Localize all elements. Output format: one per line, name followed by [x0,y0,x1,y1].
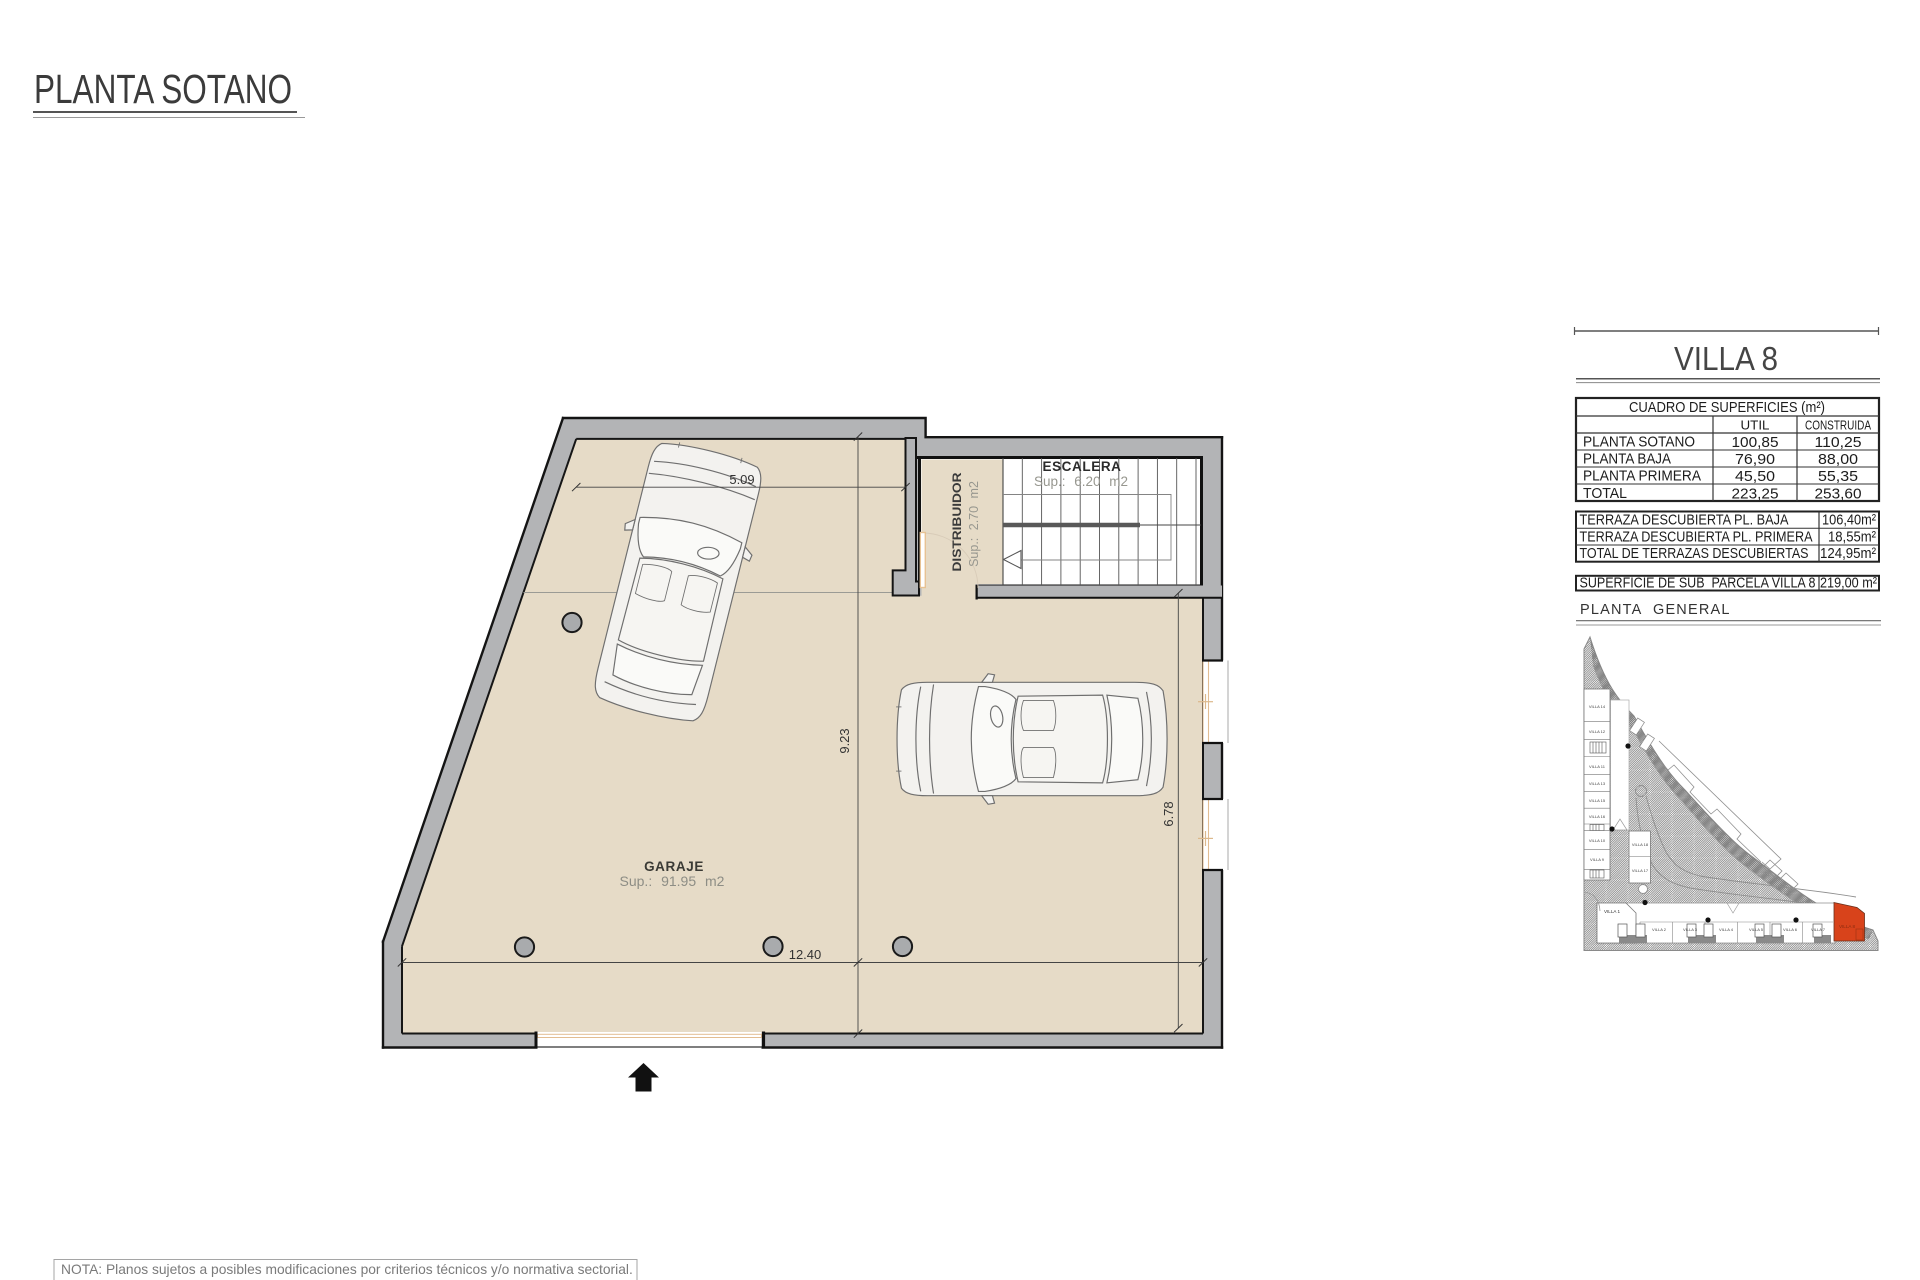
svg-text:VILLA 8: VILLA 8 [1674,340,1778,377]
svg-text:VILLA 3: VILLA 3 [1683,927,1698,932]
svg-text:VILLA 8: VILLA 8 [1839,924,1856,929]
svg-text:76,90: 76,90 [1735,451,1775,468]
svg-text:223,25: 223,25 [1732,486,1779,503]
svg-text:VILLA 1: VILLA 1 [1604,909,1621,914]
svg-text:GARAJE: GARAJE [644,859,704,874]
svg-text:VILLA 9: VILLA 9 [1590,857,1605,862]
svg-text:TERRAZA DESCUBIERTA PL. PRIMER: TERRAZA DESCUBIERTA PL. PRIMERA [1580,528,1813,545]
svg-text:VILLA 16: VILLA 16 [1589,814,1606,819]
svg-text:PLANTA SOTANO: PLANTA SOTANO [1583,434,1695,451]
svg-text:VILLA 12: VILLA 12 [1589,729,1606,734]
svg-text:124,95m²: 124,95m² [1820,545,1876,562]
svg-text:VILLA 13: VILLA 13 [1589,781,1606,786]
svg-text:Sup.: 91.95 m2: Sup.: 91.95 m2 [620,873,725,889]
svg-text:6.78: 6.78 [1161,801,1176,826]
svg-text:88,00: 88,00 [1818,451,1858,468]
svg-text:5.09: 5.09 [729,472,754,487]
svg-text:VILLA 17: VILLA 17 [1632,868,1649,873]
svg-text:VILLA 11: VILLA 11 [1589,764,1606,769]
svg-text:VILLA 4: VILLA 4 [1719,927,1734,932]
svg-text:PLANTA PRIMERA: PLANTA PRIMERA [1583,468,1701,485]
svg-text:TOTAL: TOTAL [1583,485,1627,502]
svg-text:Sup.: 6.20 m2: Sup.: 6.20 m2 [1034,474,1128,489]
svg-text:18,55m²: 18,55m² [1828,528,1876,545]
svg-text:45,50: 45,50 [1735,468,1775,485]
svg-text:CUADRO DE SUPERFICIES (m²): CUADRO DE SUPERFICIES (m²) [1629,399,1825,416]
svg-text:253,60: 253,60 [1815,486,1862,503]
svg-text:VILLA 5: VILLA 5 [1749,927,1764,932]
svg-text:NOTA: Planos sujetos a posible: NOTA: Planos sujetos a posibles modifica… [61,1262,633,1277]
svg-text:CONSTRUIDA: CONSTRUIDA [1805,419,1872,433]
svg-text:106,40m²: 106,40m² [1822,512,1876,529]
svg-text:110,25: 110,25 [1815,434,1862,451]
svg-text:55,35: 55,35 [1818,468,1858,485]
svg-text:VILLA 7: VILLA 7 [1811,927,1826,932]
svg-text:TERRAZA DESCUBIERTA PL. BAJA: TERRAZA DESCUBIERTA PL. BAJA [1580,512,1789,529]
svg-text:VILLA 6: VILLA 6 [1783,927,1798,932]
svg-text:UTIL: UTIL [1741,419,1770,433]
svg-text:PLANTA SOTANO: PLANTA SOTANO [34,66,292,112]
svg-text:SUPERFICIE DE SUB_PARCELA VILL: SUPERFICIE DE SUB_PARCELA VILLA 8 [1580,574,1816,591]
svg-text:VILLA 2: VILLA 2 [1652,927,1667,932]
svg-text:VILLA 15: VILLA 15 [1589,798,1606,803]
svg-text:219,00 m²: 219,00 m² [1820,574,1877,591]
svg-text:TOTAL DE TERRAZAS DESCUBIERTAS: TOTAL DE TERRAZAS DESCUBIERTAS [1580,545,1809,562]
svg-text:VILLA 18: VILLA 18 [1632,842,1649,847]
svg-text:PLANTA GENERAL: PLANTA GENERAL [1580,602,1731,618]
svg-text:9.23: 9.23 [837,728,852,753]
svg-text:PLANTA BAJA: PLANTA BAJA [1583,451,1671,468]
svg-text:DISTRIBUIDOR: DISTRIBUIDOR [950,472,964,571]
svg-text:VILLA 10: VILLA 10 [1589,838,1606,843]
svg-text:100,85: 100,85 [1732,434,1779,451]
svg-text:VILLA 14: VILLA 14 [1589,704,1606,709]
svg-text:12.40: 12.40 [789,947,822,962]
svg-text:ESCALERA: ESCALERA [1042,459,1121,474]
svg-text:Sup.: 2.70 m2: Sup.: 2.70 m2 [967,481,981,567]
